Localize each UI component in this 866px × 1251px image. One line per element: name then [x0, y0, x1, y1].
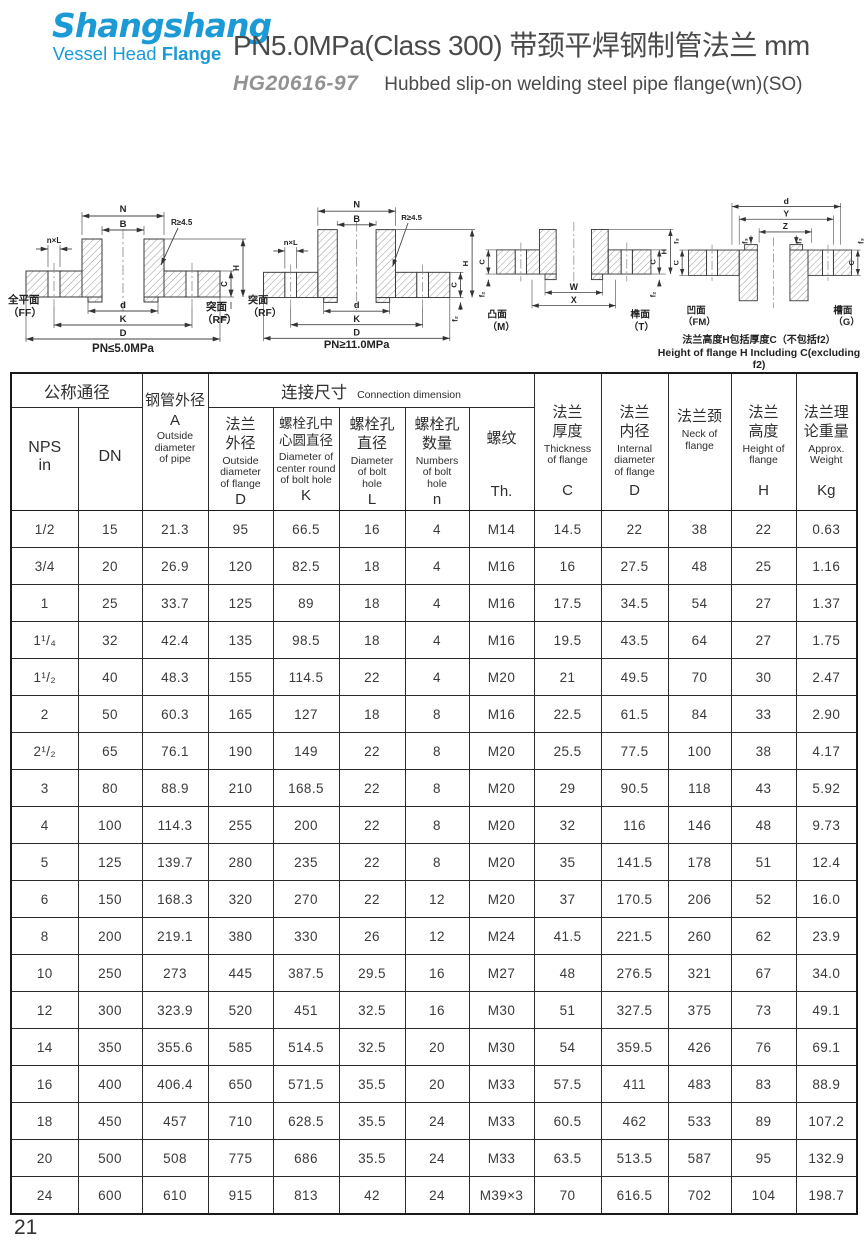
- table-cell: 80: [78, 770, 142, 807]
- table-cell: 155: [208, 659, 273, 696]
- dim-C: C: [220, 281, 229, 287]
- table-cell: 29.5: [339, 955, 405, 992]
- table-cell: 168.5: [273, 770, 339, 807]
- table-cell: 14.5: [534, 511, 601, 548]
- table-cell: 18: [11, 1103, 78, 1140]
- table-cell: 276.5: [601, 955, 668, 992]
- table-cell: 146: [668, 807, 731, 844]
- figure-flange-ff-rf: N B n×L R≥4.5 d K D C H f₁ 全平面 （FF） 突面 （…: [8, 183, 248, 355]
- table-cell: 54: [668, 585, 731, 622]
- dim-nxL: n×L: [284, 238, 298, 247]
- table-cell: 22: [601, 511, 668, 548]
- table-cell: 29: [534, 770, 601, 807]
- table-cell: 24: [11, 1177, 78, 1215]
- table-cell: 42: [339, 1177, 405, 1215]
- table-cell: 235: [273, 844, 339, 881]
- table-cell: 4: [405, 548, 469, 585]
- table-cell: 4.17: [796, 733, 857, 770]
- table-cell: 1: [11, 585, 78, 622]
- col-header-nps: NPSin: [11, 408, 78, 511]
- table-cell: 120: [208, 548, 273, 585]
- face-label-ff-code: （FF）: [8, 306, 42, 319]
- table-cell: 34.5: [601, 585, 668, 622]
- table-cell: 775: [208, 1140, 273, 1177]
- col-header-thickness: 法兰 厚度 Thickness of flange C: [534, 373, 601, 511]
- table-cell: 65: [78, 733, 142, 770]
- table-cell: 70: [534, 1177, 601, 1215]
- face-label-t-code: （T）: [629, 320, 654, 333]
- table-cell: 400: [78, 1066, 142, 1103]
- logo-tagline-light: Vessel Head: [53, 43, 162, 64]
- dim-f2-left: f₂: [478, 292, 487, 298]
- figure-flange-m-t: C f₂ W X C H f₂ 凸面 （M） 榫面 （T）: [478, 196, 678, 340]
- table-row: 10250273445387.529.516M2748276.53216734.…: [11, 955, 857, 992]
- face-label-rf-cn: 突面: [248, 293, 268, 306]
- table-cell: 813: [273, 1177, 339, 1215]
- group-header-nominal: 公称通径: [11, 373, 142, 408]
- table-cell: 37: [534, 881, 601, 918]
- dim-B: B: [120, 219, 127, 230]
- table-cell: 22: [339, 807, 405, 844]
- table-cell: 69.1: [796, 1029, 857, 1066]
- table-cell: 18: [339, 622, 405, 659]
- table-cell: 462: [601, 1103, 668, 1140]
- table-cell: 127: [273, 696, 339, 733]
- dim-f3-right: f₃: [856, 238, 865, 244]
- table-cell: 1.37: [796, 585, 857, 622]
- page-subtitle-en: Hubbed slip-on welding steel pipe flange…: [384, 74, 802, 96]
- dim-W: W: [570, 282, 579, 292]
- table-cell: 650: [208, 1066, 273, 1103]
- table-cell: 14: [11, 1029, 78, 1066]
- table-cell: 118: [668, 770, 731, 807]
- page-number: 21: [14, 1216, 37, 1240]
- table-cell: M33: [469, 1103, 534, 1140]
- table-cell: 48.3: [142, 659, 208, 696]
- table-cell: 513.5: [601, 1140, 668, 1177]
- table-cell: 19.5: [534, 622, 601, 659]
- table-cell: 43: [731, 770, 796, 807]
- table-cell: 141.5: [601, 844, 668, 881]
- table-cell: 48: [534, 955, 601, 992]
- table-cell: M39×3: [469, 1177, 534, 1215]
- table-cell: 198.7: [796, 1177, 857, 1215]
- table-cell: 210: [208, 770, 273, 807]
- dim-N: N: [120, 204, 127, 215]
- figure-note-en: Height of flange H Including C(excluding…: [652, 347, 866, 371]
- table-cell: 355.6: [142, 1029, 208, 1066]
- table-cell: 100: [668, 733, 731, 770]
- table-cell: 26: [339, 918, 405, 955]
- table-cell: 3: [11, 770, 78, 807]
- table-cell: 40: [78, 659, 142, 696]
- table-cell: 27: [731, 585, 796, 622]
- dim-Y: Y: [783, 209, 789, 219]
- logo-wordmark: Shangshang: [52, 6, 222, 45]
- table-cell: 38: [668, 511, 731, 548]
- flange-cross-section: [264, 222, 450, 310]
- col-header-neck: 法兰颈 Neck of flange: [668, 373, 731, 511]
- table-cell: 8: [405, 844, 469, 881]
- table-cell: 16: [405, 955, 469, 992]
- table-row: 18450457710628.535.524M3360.546253389107…: [11, 1103, 857, 1140]
- table-cell: M24: [469, 918, 534, 955]
- dim-f3-b: f₃: [795, 238, 804, 244]
- table-cell: 25: [78, 585, 142, 622]
- table-cell: 16: [534, 548, 601, 585]
- table-cell: M20: [469, 807, 534, 844]
- table-cell: 4: [405, 659, 469, 696]
- face-label-m-cn: 凸面: [487, 309, 507, 321]
- table-cell: 21: [534, 659, 601, 696]
- table-row: 12300323.952045132.516M3051327.53757349.…: [11, 992, 857, 1029]
- dim-C: C: [450, 282, 459, 288]
- dim-H: H: [461, 260, 470, 266]
- face-label-rf-code: （RF）: [202, 313, 237, 326]
- table-cell: 20: [78, 548, 142, 585]
- dim-R: R≥4.5: [171, 218, 193, 227]
- table-cell: M20: [469, 659, 534, 696]
- dim-f2: f₂: [451, 315, 460, 322]
- table-cell: 24: [405, 1177, 469, 1215]
- table-cell: 48: [668, 548, 731, 585]
- table-cell: 321: [668, 955, 731, 992]
- table-cell: 255: [208, 807, 273, 844]
- logo-tagline-bold: Flange: [162, 43, 222, 64]
- table-cell: 600: [78, 1177, 142, 1215]
- table-cell: 270: [273, 881, 339, 918]
- table-cell: 350: [78, 1029, 142, 1066]
- table-cell: 221.5: [601, 918, 668, 955]
- table-cell: 165: [208, 696, 273, 733]
- table-cell: 139.7: [142, 844, 208, 881]
- table-cell: 82.5: [273, 548, 339, 585]
- dim-K: K: [120, 314, 127, 325]
- col-header-bolt-number: 螺栓孔 数量 Numbers of bolt hole n: [405, 408, 469, 511]
- col-header-bolt-circle: 螺栓孔中 心圆直径 Diameter of center round of bo…: [273, 408, 339, 511]
- table-row: 6150168.33202702212M2037170.52065216.0: [11, 881, 857, 918]
- table-cell: 406.4: [142, 1066, 208, 1103]
- table-cell: 616.5: [601, 1177, 668, 1215]
- table-cell: 628.5: [273, 1103, 339, 1140]
- flange-cross-section: [497, 222, 651, 289]
- table-cell: 27.5: [601, 548, 668, 585]
- dim-K: K: [353, 314, 360, 324]
- table-cell: 686: [273, 1140, 339, 1177]
- dim-f3-a: f₃: [740, 238, 749, 244]
- table-cell: M30: [469, 992, 534, 1029]
- table-cell: 18: [339, 548, 405, 585]
- dim-d: d: [354, 300, 360, 310]
- col-header-inner-diameter: 法兰 内径 Internal diameter of flange D: [601, 373, 668, 511]
- table-cell: 24: [405, 1140, 469, 1177]
- table-cell: 18: [339, 696, 405, 733]
- table-cell: 88.9: [796, 1066, 857, 1103]
- table-cell: 150: [78, 881, 142, 918]
- table-cell: 380: [208, 918, 273, 955]
- face-label-rf-cn: 突面: [206, 300, 227, 313]
- col-header-dn: DN: [78, 408, 142, 511]
- table-cell: M33: [469, 1140, 534, 1177]
- spec-table: 公称通径 钢管外径 A Outside diameter of pipe 连接尺…: [10, 372, 858, 1215]
- table-cell: 52: [731, 881, 796, 918]
- table-cell: 17.5: [534, 585, 601, 622]
- spec-table-body: 1/21521.39566.5164M1414.52238220.633/420…: [11, 511, 857, 1215]
- table-cell: 64: [668, 622, 731, 659]
- fig1-caption: PN≤5.0MPa: [92, 343, 155, 355]
- table-cell: 23.9: [796, 918, 857, 955]
- table-cell: 359.5: [601, 1029, 668, 1066]
- table-cell: M30: [469, 1029, 534, 1066]
- table-cell: 34.0: [796, 955, 857, 992]
- figure-flange-fm-g: d Y Z f₃ f₃ C f₃ C f₃ 凹面 （FM） 槽面 （G）: [674, 192, 866, 328]
- table-cell: 170.5: [601, 881, 668, 918]
- table-cell: 4: [405, 622, 469, 659]
- face-label-g-code: （G）: [833, 316, 859, 328]
- table-row: 8200219.13803302612M2441.5221.52606223.9: [11, 918, 857, 955]
- table-cell: 16: [11, 1066, 78, 1103]
- table-cell: 200: [273, 807, 339, 844]
- table-cell: 61.5: [601, 696, 668, 733]
- table-cell: 22: [731, 511, 796, 548]
- group-header-connection: 连接尺寸 Connection dimension: [208, 373, 534, 408]
- table-cell: 500: [78, 1140, 142, 1177]
- table-cell: 411: [601, 1066, 668, 1103]
- table-row: 5125139.7280235228M2035141.51785112.4: [11, 844, 857, 881]
- table-cell: 100: [78, 807, 142, 844]
- table-cell: 70: [668, 659, 731, 696]
- table-cell: 22: [339, 844, 405, 881]
- dim-H: H: [660, 249, 669, 254]
- table-cell: 8: [405, 733, 469, 770]
- table-cell: 41.5: [534, 918, 601, 955]
- table-cell: 116: [601, 807, 668, 844]
- table-cell: 22.5: [534, 696, 601, 733]
- table-cell: 168.3: [142, 881, 208, 918]
- table-cell: 89: [731, 1103, 796, 1140]
- table-cell: 1/2: [11, 511, 78, 548]
- table-cell: 98.5: [273, 622, 339, 659]
- table-cell: 219.1: [142, 918, 208, 955]
- table-cell: 107.2: [796, 1103, 857, 1140]
- table-cell: 16.0: [796, 881, 857, 918]
- table-cell: 32.5: [339, 1029, 405, 1066]
- table-cell: 5.92: [796, 770, 857, 807]
- table-cell: M16: [469, 696, 534, 733]
- table-cell: 8: [405, 807, 469, 844]
- table-cell: 114.3: [142, 807, 208, 844]
- table-cell: 76.1: [142, 733, 208, 770]
- table-cell: 6: [11, 881, 78, 918]
- table-row: 16400406.4650571.535.520M3357.5411483838…: [11, 1066, 857, 1103]
- table-cell: 48: [731, 807, 796, 844]
- table-row: 1¹/₄3242.413598.5184M1619.543.564271.75: [11, 622, 857, 659]
- table-cell: 83: [731, 1066, 796, 1103]
- face-label-fm-code: （FM）: [683, 316, 716, 328]
- table-cell: 533: [668, 1103, 731, 1140]
- table-cell: 445: [208, 955, 273, 992]
- table-cell: 104: [731, 1177, 796, 1215]
- table-cell: 8: [405, 770, 469, 807]
- table-cell: 571.5: [273, 1066, 339, 1103]
- table-cell: 273: [142, 955, 208, 992]
- table-cell: 26.9: [142, 548, 208, 585]
- table-cell: 35.5: [339, 1140, 405, 1177]
- table-cell: 1.75: [796, 622, 857, 659]
- table-row: 1/21521.39566.5164M1414.52238220.63: [11, 511, 857, 548]
- table-cell: 125: [78, 844, 142, 881]
- table-cell: 66.5: [273, 511, 339, 548]
- face-label-rf-code: （RF）: [248, 306, 282, 319]
- table-cell: 49.1: [796, 992, 857, 1029]
- dim-C-left: C: [674, 259, 681, 265]
- dim-f3-left: f₃: [674, 238, 681, 244]
- table-cell: 77.5: [601, 733, 668, 770]
- table-cell: 57.5: [534, 1066, 601, 1103]
- dim-B: B: [353, 214, 360, 224]
- table-cell: 20: [11, 1140, 78, 1177]
- table-cell: M20: [469, 770, 534, 807]
- table-cell: 12: [11, 992, 78, 1029]
- dim-D: D: [120, 328, 127, 339]
- table-cell: M14: [469, 511, 534, 548]
- table-cell: 88.9: [142, 770, 208, 807]
- table-cell: 206: [668, 881, 731, 918]
- table-cell: 67: [731, 955, 796, 992]
- dim-Z: Z: [783, 221, 788, 231]
- table-cell: 710: [208, 1103, 273, 1140]
- face-label-m-code: （M）: [487, 320, 515, 333]
- face-label-ff-cn: 全平面: [8, 293, 40, 306]
- table-cell: 132.9: [796, 1140, 857, 1177]
- table-cell: 89: [273, 585, 339, 622]
- table-row: 25060.3165127188M1622.561.584332.90: [11, 696, 857, 733]
- table-cell: 24: [405, 1103, 469, 1140]
- table-cell: 587: [668, 1140, 731, 1177]
- table-cell: 330: [273, 918, 339, 955]
- table-cell: 38: [731, 733, 796, 770]
- table-cell: 12.4: [796, 844, 857, 881]
- table-cell: 300: [78, 992, 142, 1029]
- table-cell: M16: [469, 622, 534, 659]
- col-header-height: 法兰 高度 Height of flange H: [731, 373, 796, 511]
- table-cell: 76: [731, 1029, 796, 1066]
- table-cell: 90.5: [601, 770, 668, 807]
- table-cell: 60.3: [142, 696, 208, 733]
- table-cell: 25.5: [534, 733, 601, 770]
- table-cell: 51: [731, 844, 796, 881]
- face-label-t-cn: 榫面: [630, 308, 650, 321]
- table-cell: 16: [405, 992, 469, 1029]
- dim-H: H: [232, 265, 241, 271]
- table-cell: 280: [208, 844, 273, 881]
- table-cell: 12: [405, 918, 469, 955]
- table-cell: 51: [534, 992, 601, 1029]
- table-cell: 49.5: [601, 659, 668, 696]
- table-row: 246006109158134224M39×370616.5702104198.…: [11, 1177, 857, 1215]
- table-cell: 30: [731, 659, 796, 696]
- table-row: 2¹/₂6576.1190149228M2025.577.5100384.17: [11, 733, 857, 770]
- table-cell: 35: [534, 844, 601, 881]
- table-cell: 375: [668, 992, 731, 1029]
- table-cell: 35.5: [339, 1066, 405, 1103]
- table-cell: 15: [78, 511, 142, 548]
- table-cell: 5: [11, 844, 78, 881]
- table-cell: 60.5: [534, 1103, 601, 1140]
- table-cell: 520: [208, 992, 273, 1029]
- table-cell: 915: [208, 1177, 273, 1215]
- dimension-lines: N B n×L R≥4.5 d K D C H f₂: [264, 199, 476, 341]
- dim-C-left: C: [478, 259, 487, 265]
- table-cell: M33: [469, 1066, 534, 1103]
- table-row: 1¹/₂4048.3155114.5224M202149.570302.47: [11, 659, 857, 696]
- table-cell: 43.5: [601, 622, 668, 659]
- dim-f2-right: f₂: [649, 292, 658, 298]
- table-cell: 4: [405, 585, 469, 622]
- table-cell: 22: [339, 770, 405, 807]
- table-cell: 95: [731, 1140, 796, 1177]
- table-cell: 250: [78, 955, 142, 992]
- col-header-bolt-hole: 螺栓孔 直径 Diameter of bolt hole L: [339, 408, 405, 511]
- table-cell: 514.5: [273, 1029, 339, 1066]
- table-cell: 8: [405, 696, 469, 733]
- dim-X: X: [571, 295, 577, 305]
- table-cell: 21.3: [142, 511, 208, 548]
- table-cell: 62: [731, 918, 796, 955]
- figure-note-cn: 法兰高度H包括厚度C（不包括f2）: [652, 331, 866, 346]
- table-cell: 22: [339, 881, 405, 918]
- table-cell: 135: [208, 622, 273, 659]
- table-cell: 3/4: [11, 548, 78, 585]
- dim-N: N: [353, 199, 360, 209]
- table-cell: 323.9: [142, 992, 208, 1029]
- table-row: 3/42026.912082.5184M161627.548251.16: [11, 548, 857, 585]
- table-cell: M20: [469, 881, 534, 918]
- table-cell: 610: [142, 1177, 208, 1215]
- figure-flange-rf-high: N B n×L R≥4.5 d K D C H f₂ 突面 （RF） PN≥11…: [248, 183, 476, 350]
- table-cell: 4: [11, 807, 78, 844]
- dim-d: d: [120, 300, 126, 311]
- table-cell: 200: [78, 918, 142, 955]
- figure-note: 法兰高度H包括厚度C（不包括f2） Height of flange H Inc…: [652, 331, 866, 371]
- table-cell: 260: [668, 918, 731, 955]
- table-cell: 20: [405, 1066, 469, 1103]
- table-cell: 35.5: [339, 1103, 405, 1140]
- brand-logo: Shangshang Vessel Head Flange: [52, 6, 222, 65]
- table-cell: 95: [208, 511, 273, 548]
- table-cell: 702: [668, 1177, 731, 1215]
- table-cell: 10: [11, 955, 78, 992]
- table-cell: 426: [668, 1029, 731, 1066]
- table-cell: 1¹/₂: [11, 659, 78, 696]
- fig2-caption: PN≥11.0MPa: [324, 339, 390, 350]
- table-cell: 149: [273, 733, 339, 770]
- dim-C-right: C: [847, 259, 856, 265]
- table-row: 4100114.3255200228M2032116146489.73: [11, 807, 857, 844]
- table-cell: 73: [731, 992, 796, 1029]
- table-cell: M20: [469, 844, 534, 881]
- table-cell: 125: [208, 585, 273, 622]
- table-cell: 508: [142, 1140, 208, 1177]
- dim-nxL: n×L: [47, 236, 62, 245]
- table-cell: 16: [339, 511, 405, 548]
- table-cell: 450: [78, 1103, 142, 1140]
- table-cell: 22: [339, 733, 405, 770]
- table-cell: 32.5: [339, 992, 405, 1029]
- dim-d: d: [784, 196, 789, 206]
- table-cell: 33.7: [142, 585, 208, 622]
- table-cell: M16: [469, 548, 534, 585]
